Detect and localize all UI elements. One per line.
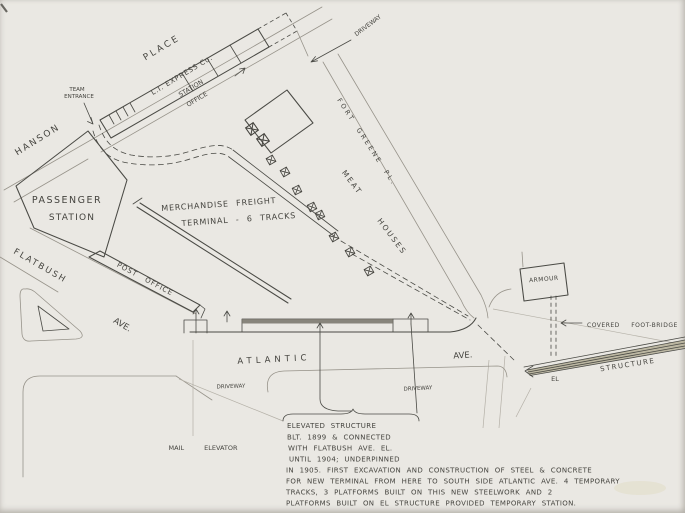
el-leader-line — [516, 388, 531, 417]
street-label-atlantic: ATLANTIC — [237, 353, 311, 367]
caption-line-4: UNTIL 1904; UNDERPINNED — [289, 456, 400, 464]
traffic-island-inner-triangle — [38, 306, 69, 331]
dashed-line-to-corner-b — [352, 254, 470, 320]
track-lines — [93, 125, 531, 417]
el-column-marker — [307, 202, 317, 212]
caption-leader-center — [320, 334, 352, 411]
el-label: EL — [551, 375, 559, 383]
street-label-hanson: HANSON — [14, 123, 63, 159]
armour-lot-line — [522, 252, 523, 267]
caption-line-2: BLT. 1899 & CONNECTED — [287, 434, 391, 442]
mail-elevator-label: MAIL ELEVATOR — [168, 444, 238, 452]
traffic-island-outer — [20, 289, 82, 341]
street-label-atlantic-ave: AVE. — [453, 350, 473, 361]
caption-block: ELEVATED STRUCTURE BLT. 1899 & CONNECTED… — [285, 422, 620, 508]
buildings — [16, 13, 568, 333]
passenger-station-label-2: STATION — [49, 213, 95, 223]
platform-east-section — [393, 319, 428, 332]
freight-terminal-label-1: MERCHANDISE FREIGHT — [161, 196, 277, 213]
team-entrance-arrow — [84, 103, 93, 124]
caption-line-5: IN 1905. FIRST EXCAVATION AND CONSTRUCTI… — [286, 467, 592, 475]
driveway-top-label: DRIVEWAY — [353, 13, 383, 38]
li-express-dashed-extension — [258, 13, 297, 47]
caption-line-8: PLATFORMS BUILT ON EL STRUCTURE PROVIDED… — [286, 500, 576, 508]
street-label-flatbush: FLATBUSH — [12, 247, 69, 286]
fort-greene-pl-west-curb — [323, 62, 474, 318]
driveway-top-arrow — [311, 40, 351, 62]
street-label-place: PLACE — [142, 33, 182, 63]
atlantic-platform-band — [242, 319, 393, 324]
el-column-marker — [364, 266, 374, 276]
armour-driveway-curve — [489, 289, 511, 307]
caption-line-6: FOR NEW TERMINAL FROM HERE TO SOUTH SIDE… — [286, 478, 620, 486]
face-entrance-arrow-2 — [224, 311, 230, 322]
armour-label: ARMOUR — [529, 275, 559, 285]
driveway-east-label: DRIVEWAY — [403, 385, 433, 393]
li-express-building-outline — [100, 29, 269, 138]
arrows — [84, 40, 419, 436]
express-yard-edge — [297, 31, 308, 56]
team-entrance-label-1: TEAM — [68, 87, 85, 93]
covered-footbridge-label: COVERED FOOT-BRIDGE — [587, 322, 678, 329]
passenger-station-label-1: PASSENGER — [32, 195, 102, 206]
footbridge — [551, 296, 582, 359]
hand-drawn-terminal-map: PLACE HANSON TEAM ENTRANCE DRIVEWAY L.I.… — [0, 0, 685, 513]
paper-stain — [614, 481, 666, 495]
meat-houses-label-1: MEAT — [340, 168, 364, 196]
freight-terminal-label-2: TERMINAL - 6 TRACKS — [180, 211, 296, 228]
incoming-track-dashed-north — [99, 125, 233, 157]
dashed-line-across-intersection — [478, 325, 515, 361]
south-block-east-outline — [267, 366, 507, 392]
corner-pen-mark — [1, 4, 7, 12]
el-column-marker — [292, 185, 302, 195]
post-office-label: POST OFFICE — [115, 261, 174, 297]
passenger-station-outline — [16, 131, 127, 257]
south-block-west-outline — [23, 376, 176, 477]
el-column-marker — [345, 247, 355, 257]
covered-footbridge-dashes — [551, 296, 556, 359]
driveway-west-label: DRIVEWAY — [216, 383, 246, 390]
el-column-marker — [266, 155, 276, 165]
street-label-flatbush-ave: AVE. — [111, 316, 133, 334]
caption-line-7: TRACKS, 3 PLATFORMS BUILT ON THIS NEW ST… — [285, 489, 553, 497]
caption-line-3: WITH FLATBUSH AVE. EL. — [288, 445, 392, 453]
south-face-west-bay — [184, 320, 207, 333]
team-entrance-gate-ticks — [109, 103, 135, 124]
meat-houses-label-2: HOUSES — [375, 216, 408, 256]
el-column-marker — [246, 123, 259, 136]
el-column-marker — [280, 167, 290, 177]
caption-leader-east — [411, 324, 417, 413]
caption-line-1: ELEVATED STRUCTURE — [287, 422, 376, 430]
post-office-se-jog — [200, 305, 205, 318]
el-column-marker — [257, 134, 270, 147]
team-entrance-label-2: ENTRANCE — [64, 94, 94, 100]
caption-arrow-east — [408, 313, 414, 324]
express-entry-arrow — [235, 68, 245, 76]
meat-house-building — [245, 90, 313, 153]
